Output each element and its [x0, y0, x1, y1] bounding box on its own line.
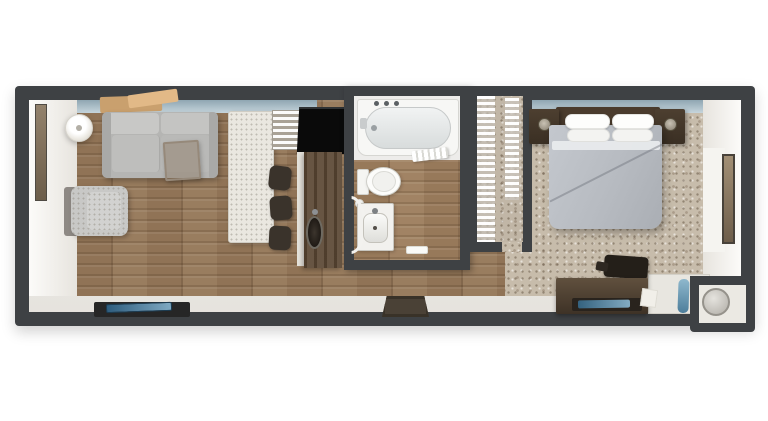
tub-faucet-1	[374, 101, 379, 106]
west-mirror	[35, 104, 47, 201]
kitchen-faucet	[312, 209, 318, 215]
closet-wire-shelf-right	[505, 98, 519, 200]
alcove-round-fixture	[702, 288, 730, 316]
bar-stool-3	[268, 225, 291, 250]
pillow-2	[612, 114, 654, 129]
toilet-seat	[372, 171, 396, 192]
sofa-arm-left	[102, 112, 111, 178]
vanity-drain	[373, 226, 377, 230]
kitchen-counter	[304, 152, 342, 268]
desk-chair-arm	[595, 261, 608, 272]
table-lamp-right	[664, 118, 677, 131]
floorplan-stage	[0, 0, 768, 421]
tray-blue-item	[578, 300, 630, 309]
sofa-arm-right	[209, 112, 218, 178]
bathtub-basin	[365, 107, 451, 149]
floor-lamp-finial	[76, 125, 82, 131]
side-table	[163, 140, 202, 181]
sofa-back-cushion-right	[161, 113, 213, 134]
tv-black-counter	[297, 107, 347, 154]
tub-spout	[360, 118, 367, 129]
east-mirror	[722, 154, 735, 244]
bath-mat	[406, 246, 428, 254]
bar-stool-1	[268, 165, 292, 191]
tub-faucet-2	[384, 101, 389, 106]
sofa-seat-cushion-left	[112, 135, 160, 172]
pillow-4	[612, 129, 653, 142]
tub-faucet-3	[394, 101, 399, 106]
tub-drain	[371, 125, 377, 131]
sofa-back-cushion-left	[107, 113, 159, 134]
pillow-1	[565, 114, 610, 129]
closet-door-opening	[502, 242, 522, 252]
kitchen-island	[228, 111, 274, 243]
ironing-board	[677, 279, 689, 313]
console-paper	[640, 288, 658, 308]
vanity-faucet	[372, 208, 378, 214]
kitchen-sink	[306, 216, 323, 249]
entry-doormat	[382, 296, 429, 317]
pillow-3	[567, 129, 610, 142]
bar-stool-2	[269, 195, 293, 220]
desk-chair	[603, 254, 648, 279]
closet-wire-shelf-left	[477, 96, 495, 242]
armchair-cushion	[87, 192, 121, 230]
sheet-fold	[552, 141, 660, 150]
